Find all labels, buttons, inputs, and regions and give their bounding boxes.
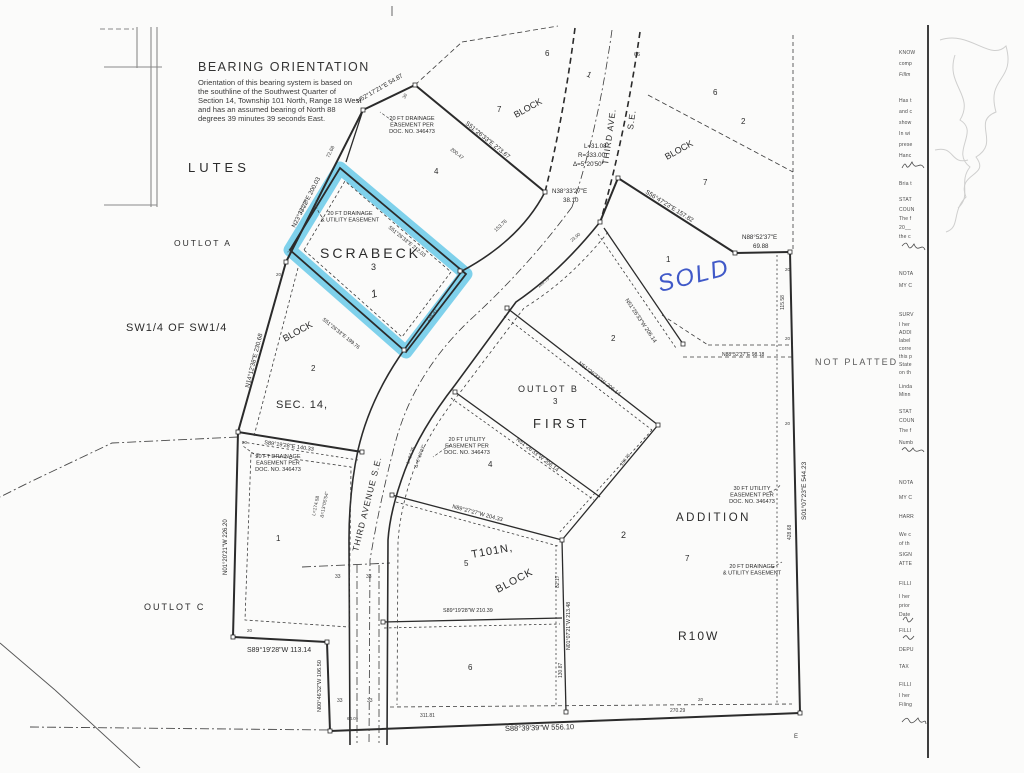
area-label: BLOCK [663, 138, 695, 162]
margin-text-fragment: Has t [899, 98, 912, 104]
margin-text-fragment: show [899, 120, 911, 126]
margin-text-fragment: SURV [899, 312, 914, 318]
margin-text-fragment: NOTA [899, 271, 913, 277]
easement-note: 30 FT UTILITYEASEMENT PERDOC. NO. 346473 [729, 486, 775, 505]
dimension-label: 153.76 [493, 218, 508, 233]
bearing-label: Δ=5°20'50" [573, 161, 604, 168]
area-label: LUTES [188, 160, 250, 175]
bearing-note-heading: BEARING ORIENTATION [198, 60, 408, 74]
area-label: 1 [276, 534, 281, 543]
bearing-label: S01°07'23"E 544.23 [800, 461, 808, 520]
area-labels: LUTESOUTLOT ASW1/4 OF SW1/4SCRABECK31BLO… [126, 49, 898, 672]
margin-text-fragment: Date [899, 612, 910, 618]
margin-text-fragment: COUN [899, 418, 915, 424]
dimension-label: 115.58 [780, 295, 786, 310]
dimension-label: 33 [367, 698, 373, 704]
margin-text-fragment: We c [899, 532, 911, 538]
margin-text-fragment: TAX [899, 664, 909, 670]
dimension-label: 66 [634, 52, 640, 58]
area-label: 7 [497, 105, 502, 114]
area-label: OUTLOT A [174, 238, 232, 248]
road-labels: THIRD AVE.S.E.THIRD AVENUE S.E. [350, 108, 638, 553]
area-label: 2 [741, 117, 746, 126]
dimension-label: 20 [785, 336, 791, 341]
bearing-label: N00°46'32"W 106.50 [317, 660, 323, 712]
survey-monument [453, 390, 457, 394]
dimension-label: 311.81 [420, 713, 435, 719]
inset-corner-frame [100, 27, 162, 207]
area-label: 7 [685, 554, 690, 563]
margin-text-fragment: MY C [899, 495, 912, 501]
margin-text-fragment: STAT [899, 409, 912, 415]
bearing-note-line: Section 14, Township 101 North, Range 18… [198, 96, 408, 105]
bearing-label: 38.10 [563, 197, 579, 204]
area-label: NOT PLATTED [815, 357, 898, 367]
dimension-label: E [794, 734, 798, 740]
survey-monument [325, 640, 329, 644]
dimension-label: 20 [785, 267, 791, 272]
lot-lines [346, 110, 683, 712]
survey-monument [656, 423, 660, 427]
dimension-label: L=174.58 [311, 495, 321, 516]
area-label: 6 [545, 49, 550, 58]
margin-text-fragment: I her [899, 322, 910, 328]
dimension-label: 33 [335, 574, 341, 580]
area-label: 3 [371, 262, 376, 272]
area-label: BLOCK [281, 319, 315, 345]
margin-text-fragment: label [899, 338, 911, 344]
dimension-label: 23.90 [569, 231, 581, 242]
area-label: BLOCK [494, 566, 535, 596]
survey-monument [788, 250, 792, 254]
margin-text-column: KNOWcompFillmHas tand cshowIn wipreseHan… [899, 0, 927, 768]
area-label: SW1/4 OF SW1/4 [126, 322, 227, 334]
dimension-label: 270.29 [670, 708, 686, 714]
dimension-label: 72.68 [325, 145, 336, 159]
survey-monument [564, 710, 568, 714]
dimension-label: 64.09 [347, 716, 359, 721]
bearing-label: R=333.00 [578, 152, 606, 159]
survey-monument [360, 450, 364, 454]
bearing-note-line: degrees 39 minutes 39 seconds East. [198, 114, 408, 123]
dimension-label: 33 [366, 574, 372, 580]
survey-monument [733, 251, 737, 255]
bearing-label: S89°19'28"W 113.14 [247, 646, 311, 654]
survey-monument [231, 635, 235, 639]
area-label: 2 [621, 530, 626, 540]
bearing-label: N01°20'21"W 226.20 [223, 519, 229, 575]
area-label: SCRABECK [320, 245, 421, 261]
survey-monument [560, 538, 564, 542]
area-label: SEC. 14, [276, 399, 328, 411]
section-lines [0, 437, 390, 730]
dimension-label: 20 [698, 697, 704, 702]
survey-monument [798, 711, 802, 715]
bearing-note-line: and has an assumed bearing of North 88 [198, 105, 408, 114]
margin-text-fragment: prior [899, 603, 910, 609]
bearing-label: N88°52'37"E 98.18 [722, 352, 764, 358]
easement-note: 20 FT UTILITYEASEMENT PERDOC. NO. 346473 [444, 437, 490, 456]
margin-text-fragment: COUN [899, 207, 915, 213]
survey-monument [390, 493, 394, 497]
area-label: 1 [666, 255, 671, 264]
margin-text-fragment: the c [899, 234, 911, 240]
margin-text-fragment: Hanc [899, 153, 911, 159]
margin-text-fragment: FILLI [899, 628, 911, 634]
bearing-label: S56°47'23"E 157.82 [644, 189, 695, 225]
margin-text-fragment: FILLI [899, 581, 911, 587]
margin-text-fragment: In wi [899, 131, 910, 137]
margin-text-fragment: State [899, 362, 912, 368]
margin-text-fragment: Numb [899, 440, 913, 446]
dimension-label: 130.87 [558, 662, 564, 678]
bearing-note-text: Orientation of this bearing system is ba… [198, 78, 408, 123]
area-label: 5 [464, 559, 469, 568]
margin-text-fragment: 20__ [899, 225, 911, 231]
area-label: 7 [703, 178, 708, 187]
road-label: THIRD AVENUE S.E. [350, 455, 383, 552]
survey-monument [413, 83, 417, 87]
margin-text-fragment: NOTA [899, 480, 913, 486]
bearing-label: N51°26'33"W 206.14 [577, 361, 622, 398]
bearing-label: N01°07'21"W 213.48 [566, 602, 572, 650]
area-label: OUTLOT C [144, 602, 205, 612]
bearing-label: N89°27'27"W 204.33 [451, 504, 503, 523]
bearing-note-line: Orientation of this bearing system is ba… [198, 78, 408, 87]
area-label: 2 [611, 334, 616, 343]
bearing-label: S51°26'33"E 273.67 [464, 120, 512, 161]
easement-lines [242, 26, 793, 707]
survey-monument [284, 260, 288, 264]
dimension-label: 20 [247, 628, 253, 633]
plat-page: LUTESOUTLOT ASW1/4 OF SW1/4SCRABECK31BLO… [0, 0, 1024, 768]
dimension-label: 428.68 [787, 524, 793, 540]
margin-text-fragment: and c [899, 109, 912, 115]
area-label: 4 [434, 167, 439, 176]
survey-monument [328, 729, 332, 733]
margin-text-fragment: Filing [899, 702, 912, 708]
bearing-label: S89°19'28"W 210.39 [443, 608, 493, 614]
bearing-label: N14°12'38"E 230.68 [244, 332, 264, 388]
bearing-label: S88°39'39"W 556.10 [505, 722, 574, 733]
margin-text-fragment: Bria t [899, 181, 912, 187]
area-label: OUTLOT B [518, 384, 579, 394]
easement-note: 20 FT DRAINAGEEASEMENT PERDOC. NO. 34647… [255, 454, 301, 473]
margin-text-fragment: of th [899, 541, 910, 547]
margin-text-fragment: ADDI [899, 330, 912, 336]
margin-text-fragment: DEPU [899, 647, 914, 653]
bearing-label: N51°26'33"W 206.14 [623, 298, 657, 344]
survey-monument [458, 269, 462, 273]
margin-text-fragment: prese [899, 142, 913, 148]
margin-text-fragment: The f [899, 216, 911, 222]
area-label: 6 [468, 663, 473, 672]
easement-note: 20 FT DRAINAGE& UTILITY EASEMENT [321, 211, 380, 223]
margin-text-fragment: Minn [899, 392, 911, 398]
bearing-note-line: the southline of the Southwest Quarter o… [198, 87, 408, 96]
area-label: ADDITION [676, 512, 751, 524]
area-label: 2 [311, 364, 316, 373]
dimension-label: 82.17 [555, 575, 561, 588]
area-label: BLOCK [512, 96, 544, 120]
margin-text-fragment: Linda [899, 384, 912, 390]
margin-text-fragment: on th [899, 370, 911, 376]
survey-monument [381, 620, 385, 624]
margin-text-fragment: MY C [899, 283, 912, 289]
bearing-label: S89°19'28"E 140.33 [264, 440, 314, 453]
dimension-label: 33 [337, 698, 343, 704]
area-label: FIRST [533, 416, 591, 431]
margin-text-fragment: comp [899, 61, 912, 67]
road-edges [349, 28, 640, 745]
survey-monument [402, 348, 406, 352]
easement-note: 20 FT DRAINAGE& UTILITY EASEMENT [723, 564, 782, 576]
area-label: 3 [553, 397, 558, 406]
dimension-label: 20 [242, 440, 248, 445]
survey-monument [505, 306, 509, 310]
area-label: R10W [678, 629, 719, 643]
road-label: S.E. [625, 109, 638, 130]
survey-monument [598, 220, 602, 224]
survey-monument [681, 342, 685, 346]
margin-text-fragment: STAT [899, 197, 912, 203]
survey-monument [616, 176, 620, 180]
margin-text-fragment: this p [899, 354, 912, 360]
margin-text-fragment: Fillm [899, 72, 911, 78]
bearing-label: 69.88 [753, 243, 769, 250]
area-label: 6 [713, 88, 718, 97]
area-label: 4 [488, 460, 493, 469]
dimension-label: 20 [785, 421, 791, 426]
plat-map-canvas: LUTESOUTLOT ASW1/4 OF SW1/4SCRABECK31BLO… [0, 0, 1024, 768]
dimension-label: Δ=13°05'54" [319, 491, 330, 519]
bearing-label: N38°33'27"E [552, 188, 587, 195]
margin-text-fragment: corre [899, 346, 911, 352]
margin-scribbles [935, 38, 1008, 232]
area-label: 1 [585, 70, 593, 80]
margin-text-fragment: HARR [899, 514, 914, 520]
dimension-label: 20 [276, 272, 282, 277]
margin-text-fragment: The f [899, 428, 911, 434]
margin-text-fragment: ATTE [899, 561, 912, 567]
bearing-label: N88°52'37"E [742, 234, 777, 241]
bearing-label: S51°26'33"E 199.76 [321, 317, 361, 351]
margin-text-fragment: SIGN [899, 552, 912, 558]
survey-monument [543, 190, 547, 194]
margin-text-fragment: I her [899, 594, 910, 600]
survey-monument [236, 430, 240, 434]
margin-text-fragment: I her [899, 693, 910, 699]
margin-text-fragment: FILLI [899, 682, 911, 688]
dimension-label: 200.47 [449, 147, 465, 161]
bearing-orientation-note: BEARING ORIENTATION Orientation of this … [198, 60, 408, 123]
area-label: T101N, [470, 542, 514, 561]
area-label: 1 [370, 288, 379, 301]
margin-text-fragment: KNOW [899, 50, 915, 56]
bearing-label: L=31.08 [584, 143, 607, 150]
bearing-label: N51°26'33"W 206.14 [515, 437, 560, 474]
